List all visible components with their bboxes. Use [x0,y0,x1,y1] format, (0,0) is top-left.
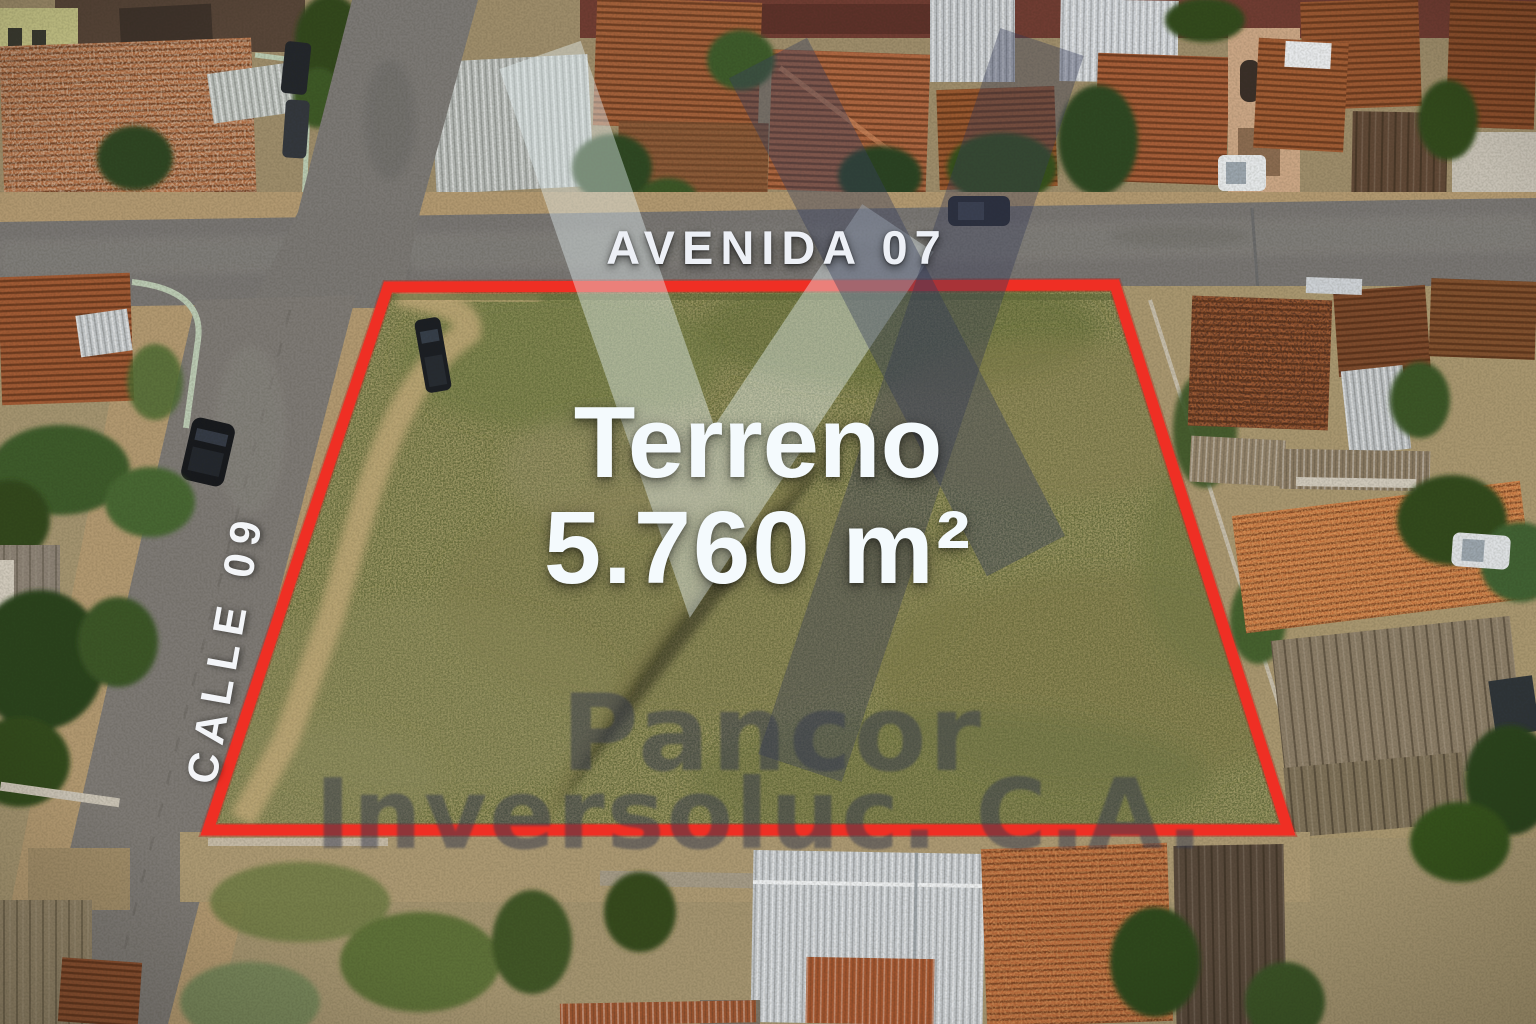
aerial-photo [0,0,1536,1024]
aerial-lot-listing: Pancor Inversoluc. C.A. AVENIDA 07 CALLE… [0,0,1536,1024]
